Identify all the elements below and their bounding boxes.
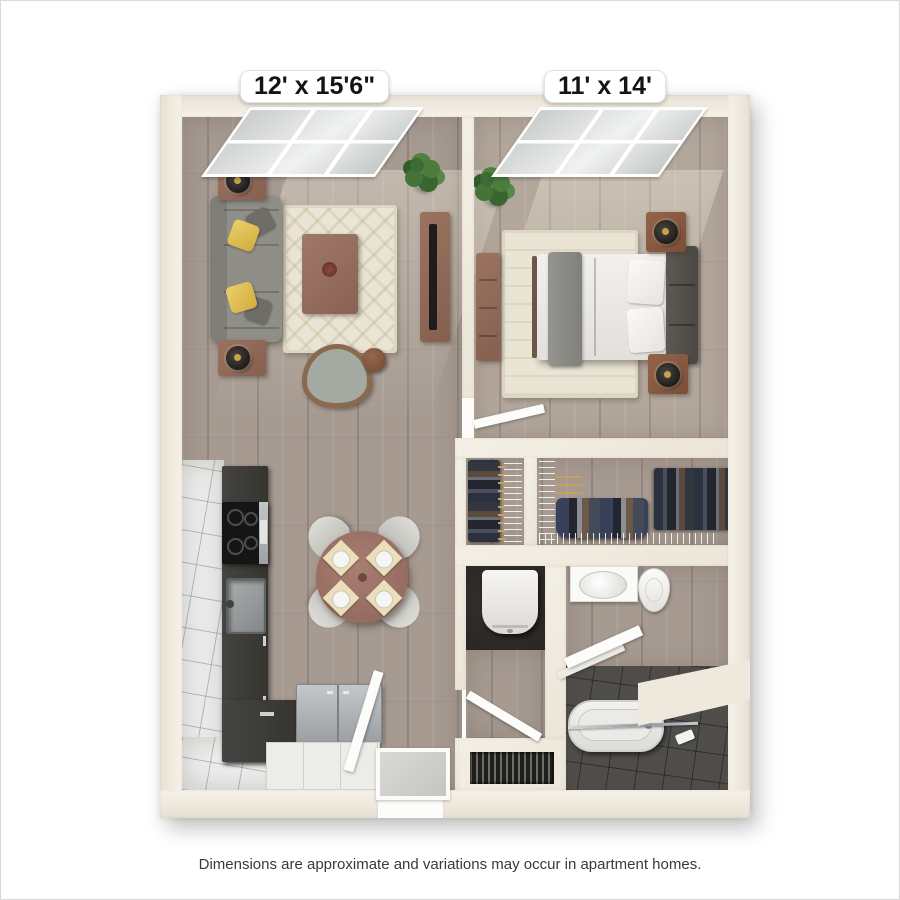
wall-laundry-bathroom — [545, 566, 566, 738]
burner-icon — [227, 509, 244, 526]
headboard — [666, 246, 698, 364]
walkin-hanging-clothes — [556, 498, 648, 538]
faucet-icon — [226, 600, 234, 608]
washer-knob — [507, 629, 513, 633]
walkin-clothes-right — [654, 468, 732, 530]
entry-threshold — [376, 748, 450, 800]
nightstand-lamp-icon — [656, 363, 680, 387]
small-closet-wire-shelf — [504, 460, 522, 542]
table-center-knob — [358, 573, 367, 582]
cabinet-handle — [260, 712, 274, 716]
sink-basin — [579, 571, 627, 599]
table-centerpiece — [322, 262, 337, 277]
burner-icon — [244, 512, 258, 526]
plate-icon — [328, 587, 353, 612]
dining-table — [316, 531, 408, 623]
exterior-wall-left — [160, 95, 182, 818]
exterior-wall-right — [728, 95, 750, 818]
plate-icon — [371, 587, 396, 612]
headboard-seam — [669, 324, 695, 326]
bed-pillow — [627, 307, 666, 353]
small-closet-clothes — [468, 460, 500, 542]
wall-below-closets — [455, 545, 728, 566]
sofa-seam — [224, 209, 279, 211]
toilet-seat — [645, 578, 663, 602]
placemat — [323, 540, 360, 577]
living-room-plant — [402, 150, 446, 210]
bathroom-vanity — [570, 566, 638, 602]
nightstand-bottom — [648, 354, 688, 394]
fridge-handle — [343, 691, 349, 694]
duvet-fold — [594, 258, 596, 356]
wall-living-bedroom-divider — [462, 117, 474, 398]
exterior-wall-bottom-right — [443, 790, 750, 818]
stove-cooktop — [222, 502, 268, 564]
ottoman — [362, 348, 386, 372]
fridge-handle — [327, 691, 333, 694]
bedroom-dimensions-label: 11' x 14' — [544, 70, 666, 103]
bed-pillow — [627, 259, 666, 305]
fridge-door-split — [337, 685, 339, 743]
tv-console — [420, 212, 450, 342]
drawer-seam — [479, 335, 497, 337]
vent-grille-icon — [470, 752, 554, 784]
kitchen-sink — [226, 578, 266, 634]
floor-plan-image: 12' x 15'6" 11' x 14' — [0, 0, 900, 900]
bed — [536, 254, 672, 360]
exterior-wall-bottom-left — [160, 790, 378, 818]
tv-screen — [429, 224, 437, 330]
wall-between-closets — [524, 456, 537, 545]
washer-door-seam — [492, 625, 528, 628]
wall-below-bedroom — [455, 438, 728, 458]
sofa — [210, 196, 282, 342]
nightstand-lamp-icon — [654, 220, 678, 244]
side-table-bottom — [218, 340, 266, 376]
plate-icon — [328, 547, 353, 572]
wall-hallway-upper — [455, 458, 466, 690]
plate-icon — [371, 547, 396, 572]
stove-control-panel — [260, 520, 267, 544]
walkin-wire-rail-left — [539, 460, 555, 540]
bath-hallway-floor — [466, 650, 545, 738]
burner-icon — [227, 538, 244, 555]
drawer-seam — [479, 307, 497, 309]
washer-dryer — [482, 570, 538, 634]
nightstand-top — [646, 212, 686, 252]
kitchen-base-cabinets — [266, 742, 380, 790]
burner-icon — [244, 536, 258, 550]
dresser — [476, 253, 500, 361]
gray-throw-blanket — [548, 252, 582, 366]
sofa-seam — [224, 327, 279, 329]
plant-icon — [410, 158, 424, 172]
headboard-seam — [669, 284, 695, 286]
living-room-dimensions-label: 12' x 15'6" — [240, 70, 389, 103]
coffee-table — [302, 234, 358, 314]
walkin-wire-shelf-bottom — [539, 533, 719, 544]
disclaimer-text: Dimensions are approximate and variation… — [0, 856, 900, 873]
table-lamp-icon — [226, 346, 250, 370]
cabinet-handle — [263, 636, 266, 646]
bed-frame-edge — [532, 256, 537, 358]
drawer-seam — [479, 279, 497, 281]
